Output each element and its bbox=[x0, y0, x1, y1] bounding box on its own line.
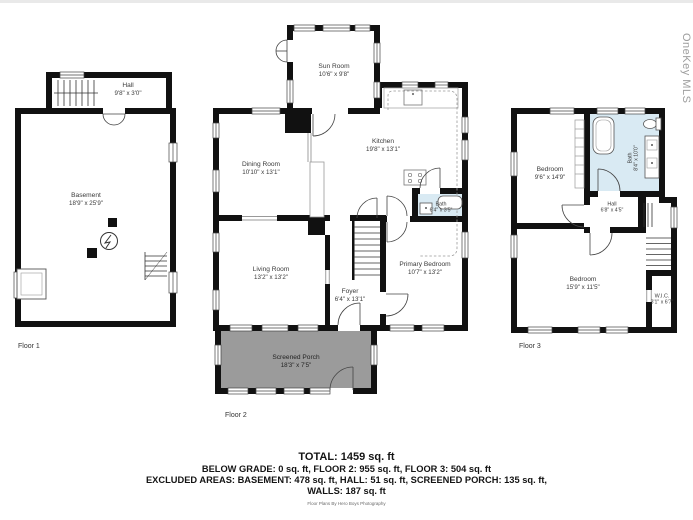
room-label-f1-hall: Hall 9'8" x 3'0" bbox=[114, 82, 141, 98]
room-label-f2-living-room: Living Room 13'2" x 13'2" bbox=[253, 266, 290, 282]
floor3-caption: Floor 3 bbox=[519, 343, 541, 350]
room-label-f2-primary-bedroom: Primary Bedroom 10'7" x 13'2" bbox=[399, 261, 450, 277]
floor1-corner-stairs bbox=[145, 252, 167, 280]
area-summary: TOTAL: 1459 sq. ft BELOW GRADE: 0 sq. ft… bbox=[0, 451, 693, 506]
floor1-caption: Floor 1 bbox=[18, 343, 40, 350]
mls-watermark: OneKey MLS bbox=[680, 33, 692, 103]
room-label-f3-wic: W.I.C. 3'1" x 6'7" bbox=[651, 294, 674, 307]
room-label-f3-hall: Hall 6'8" x 4'5" bbox=[601, 202, 624, 215]
room-label-f2-bath: Bath 6'4" x 3'5" bbox=[430, 202, 453, 215]
room-label-f2-kitchen: Kitchen 19'8" x 13'1" bbox=[366, 138, 400, 154]
area-line-walls: WALLS: 187 sq. ft bbox=[0, 486, 693, 497]
room-label-f3-bath: Bath 8'4" x 10'0" bbox=[628, 145, 641, 171]
area-line-excluded: EXCLUDED AREAS: BASEMENT: 478 sq. ft, HA… bbox=[0, 475, 693, 486]
room-label-f2-dining-room: Dining Room 10'10" x 13'1" bbox=[242, 161, 280, 177]
area-line-floors: BELOW GRADE: 0 sq. ft, FLOOR 2: 955 sq. … bbox=[0, 464, 693, 475]
room-label-f2-screened-porch: Screened Porch 18'3" x 7'5" bbox=[272, 354, 319, 370]
electrical-symbol bbox=[101, 233, 118, 250]
room-label-f3-bedroom-bottom: Bedroom 15'9" x 11'5" bbox=[566, 276, 599, 292]
room-label-f2-sun-room: Sun Room 10'6" x 9'8" bbox=[318, 63, 349, 79]
photographer-credit: Floor Plans By Hero Boys Photography bbox=[0, 501, 693, 506]
room-label-f1-basement: Basement 18'9" x 25'9" bbox=[69, 192, 103, 208]
room-label-f2-foyer: Foyer 6'4" x 13'1" bbox=[335, 288, 366, 304]
room-label-f3-bedroom-top: Bedroom 9'6" x 14'9" bbox=[535, 166, 566, 182]
window-well bbox=[17, 269, 46, 299]
floor2-caption: Floor 2 bbox=[225, 412, 247, 419]
closet-shelving bbox=[575, 120, 584, 188]
floor-plan-page: Hall 9'8" x 3'0" Basement 18'9" x 25'9" … bbox=[0, 0, 693, 520]
total-area: TOTAL: 1459 sq. ft bbox=[0, 451, 693, 464]
